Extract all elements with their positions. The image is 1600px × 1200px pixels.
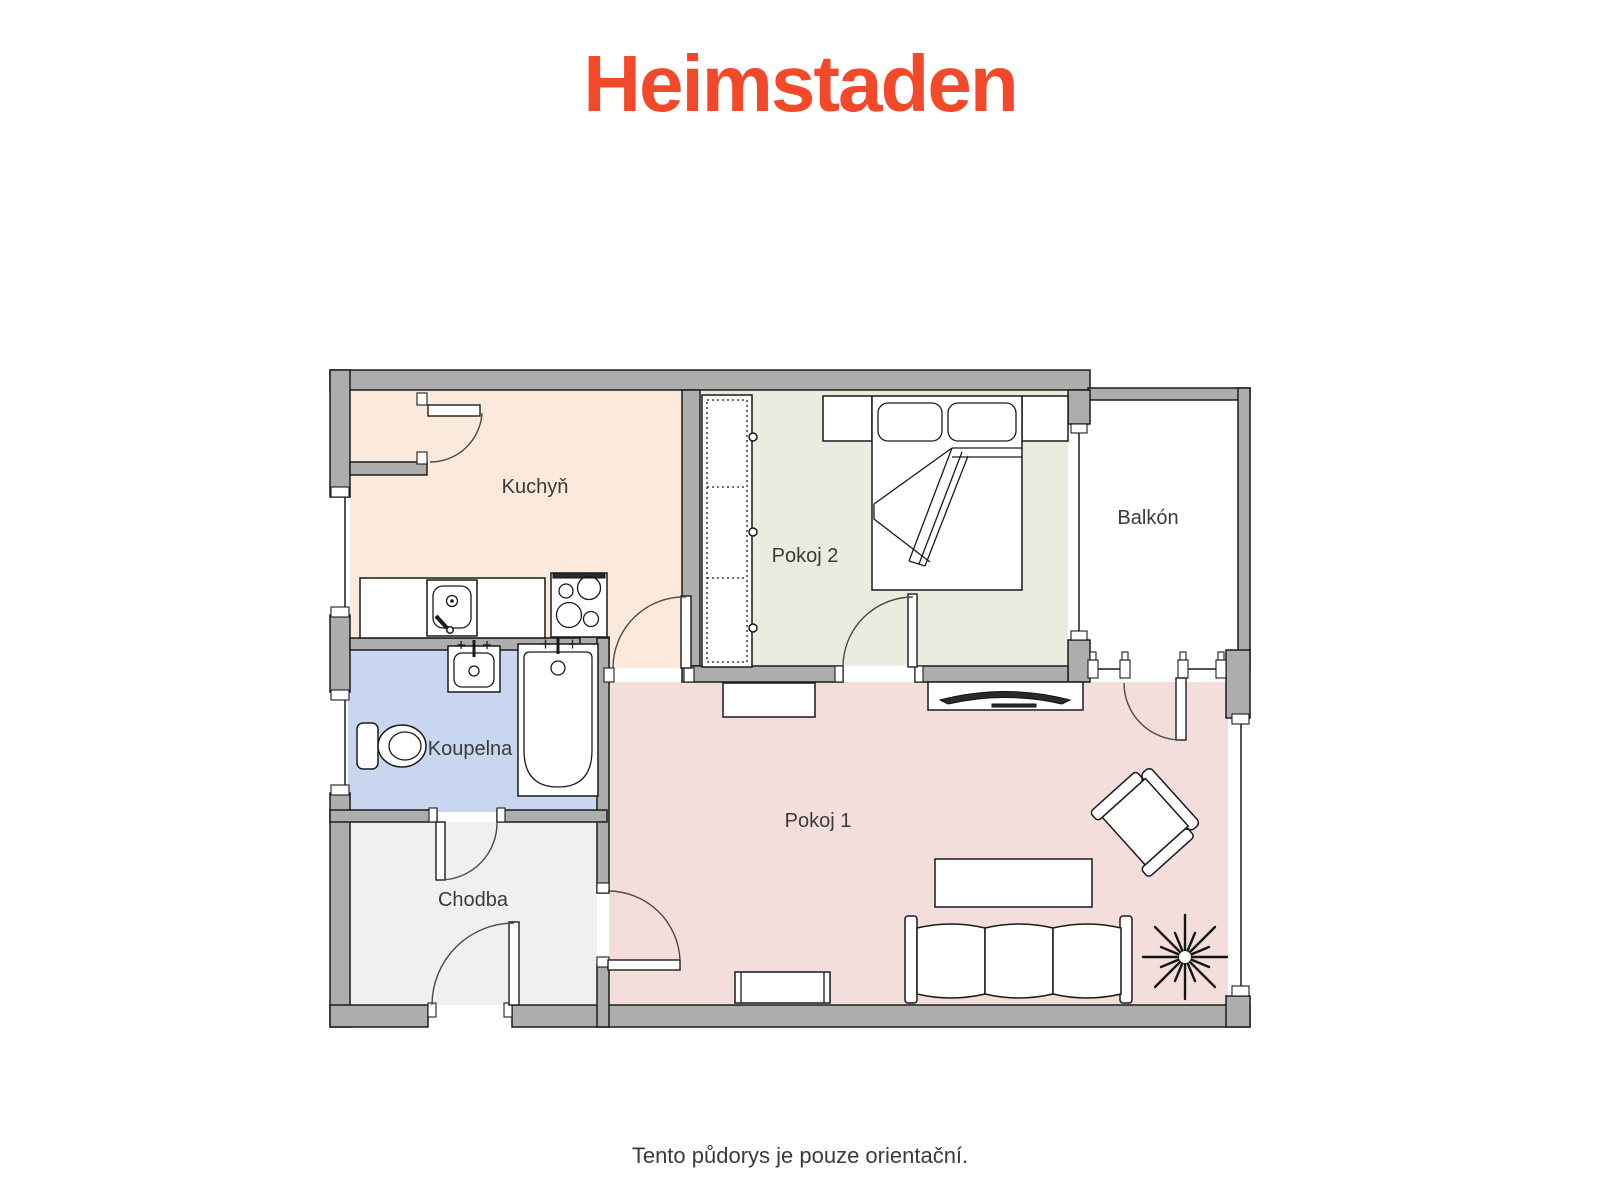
plant — [1143, 915, 1227, 999]
washbasin — [448, 640, 500, 692]
room-label-chodba: Chodba — [438, 889, 509, 911]
room-label-kuchyn: Kuchyň — [502, 476, 569, 498]
room-balkon-floor — [1080, 398, 1238, 660]
sideboard — [723, 683, 815, 717]
window-tick — [1218, 652, 1224, 660]
window-sill — [1178, 660, 1188, 678]
window-sill — [331, 690, 349, 700]
window-sill — [1071, 424, 1087, 433]
window-sill — [1071, 631, 1087, 640]
window-sill — [1232, 986, 1249, 996]
nightstand-right — [1022, 396, 1068, 441]
room-chodba-floor — [348, 822, 597, 1005]
room-label-pokoj1: Pokoj 1 — [785, 810, 852, 832]
room-label-pokoj2: Pokoj 2 — [772, 545, 839, 567]
radiator — [735, 972, 830, 1003]
nightstand-left — [823, 396, 872, 441]
window-sill — [331, 607, 349, 617]
window-sill — [1088, 660, 1098, 678]
stove — [551, 573, 607, 637]
bathtub — [518, 638, 598, 796]
window-tick — [1090, 652, 1096, 660]
window-sill — [1120, 660, 1130, 678]
page: { "logo": { "text": "Heimstaden", "color… — [0, 0, 1600, 1200]
wardrobe — [702, 395, 757, 667]
floorplan: Kuchyň Pokoj 2 Balkón Koupelna Chodba Po… — [0, 0, 1600, 1200]
window-tick — [1180, 652, 1186, 660]
window-sill — [331, 785, 349, 795]
window-sill — [331, 487, 349, 497]
room-label-koupelna: Koupelna — [428, 738, 513, 760]
disclaimer-note: Tento půdorys je pouze orientační. — [0, 1143, 1600, 1169]
toilet — [357, 723, 426, 769]
window-sill — [1232, 714, 1249, 724]
double-bed — [872, 396, 1022, 590]
window-tick — [1122, 652, 1128, 660]
window-sill — [1216, 660, 1226, 678]
coffee-table — [935, 859, 1092, 907]
room-label-balkon: Balkón — [1117, 507, 1178, 529]
kitchen-sink — [427, 580, 477, 636]
sofa — [905, 916, 1132, 1003]
